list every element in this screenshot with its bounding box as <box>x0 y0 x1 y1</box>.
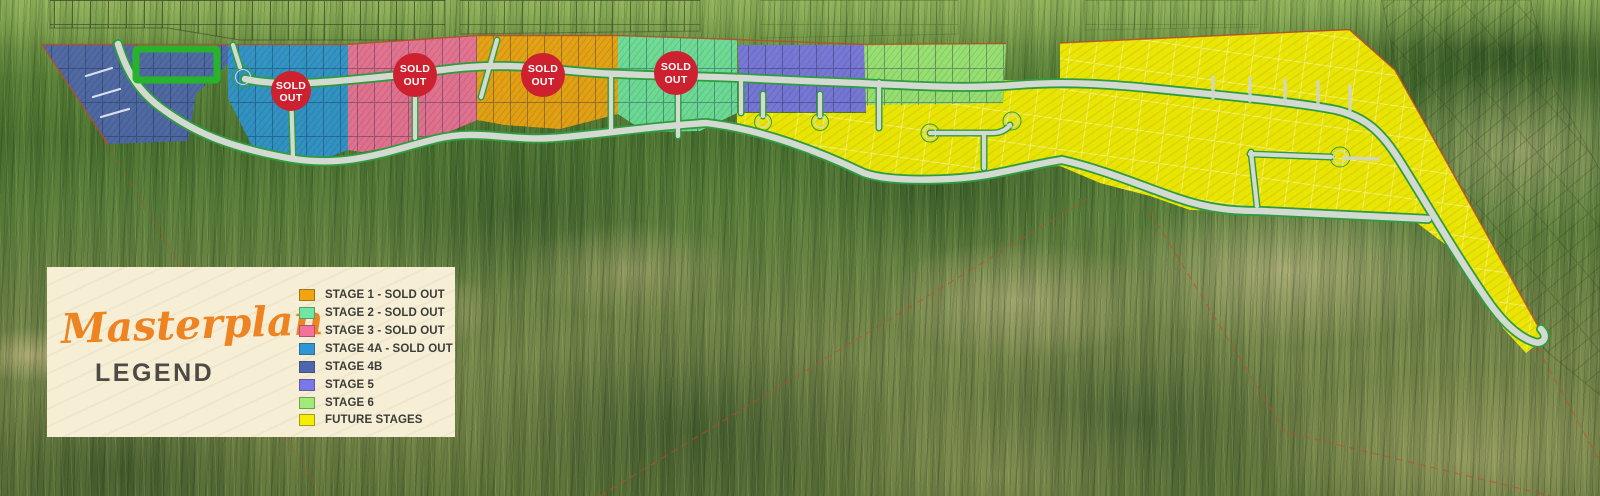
legend-swatch <box>299 343 315 355</box>
legend-swatch <box>299 307 315 319</box>
legend-item-label: STAGE 3 - SOLD OUT <box>325 325 445 337</box>
legend-item-stage-2: STAGE 2 - SOLD OUT <box>299 307 453 319</box>
legend-swatch <box>299 289 315 301</box>
sold-out-badge-2: SOLD OUT <box>393 53 437 97</box>
legend-item-label: STAGE 2 - SOLD OUT <box>325 307 445 319</box>
legend-item-label: FUTURE STAGES <box>325 414 423 426</box>
legend-panel: Masterplan LEGEND STAGE 1 - SOLD OUT STA… <box>47 267 455 437</box>
badge-line1: SOLD <box>528 63 558 75</box>
legend-item-future-stages: FUTURE STAGES <box>299 414 453 426</box>
legend-swatch <box>299 325 315 337</box>
badge-line1: SOLD <box>276 80 306 92</box>
legend-item-label: STAGE 6 <box>325 397 374 409</box>
badge-line2: OUT <box>279 92 302 104</box>
legend-item-stage-6: STAGE 6 <box>299 396 453 408</box>
badge-line1: SOLD <box>661 61 691 73</box>
legend-item-stage-1: STAGE 1 - SOLD OUT <box>299 289 453 301</box>
badge-line2: OUT <box>531 76 554 88</box>
masterplan-script-title: Masterplan <box>60 301 301 350</box>
legend-item-label: STAGE 5 <box>325 379 374 391</box>
legend-swatch <box>299 414 315 426</box>
legend-item-label: STAGE 4A - SOLD OUT <box>325 343 453 355</box>
legend-swatch <box>299 361 315 373</box>
badge-line2: OUT <box>664 74 687 86</box>
legend-swatch <box>299 397 315 409</box>
legend-list: STAGE 1 - SOLD OUT STAGE 2 - SOLD OUT ST… <box>299 289 453 427</box>
badge-line1: SOLD <box>400 63 430 75</box>
legend-item-stage-4b: STAGE 4B <box>299 361 453 373</box>
sold-out-badge-1: SOLD OUT <box>271 71 311 111</box>
legend-item-label: STAGE 1 - SOLD OUT <box>325 289 445 301</box>
masterplan-screenshot: SOLD OUT SOLD OUT SOLD OUT SOLD OUT Mast… <box>0 0 1600 496</box>
sold-out-badge-4: SOLD OUT <box>654 51 698 95</box>
badge-line2: OUT <box>403 76 426 88</box>
legend-heading: LEGEND <box>95 359 214 388</box>
legend-item-stage-3: STAGE 3 - SOLD OUT <box>299 325 453 337</box>
legend-item-stage-5: STAGE 5 <box>299 378 453 390</box>
legend-item-stage-4a: STAGE 4A - SOLD OUT <box>299 343 453 355</box>
legend-item-label: STAGE 4B <box>325 361 382 373</box>
legend-swatch <box>299 379 315 391</box>
sold-out-badge-3: SOLD OUT <box>521 53 565 97</box>
